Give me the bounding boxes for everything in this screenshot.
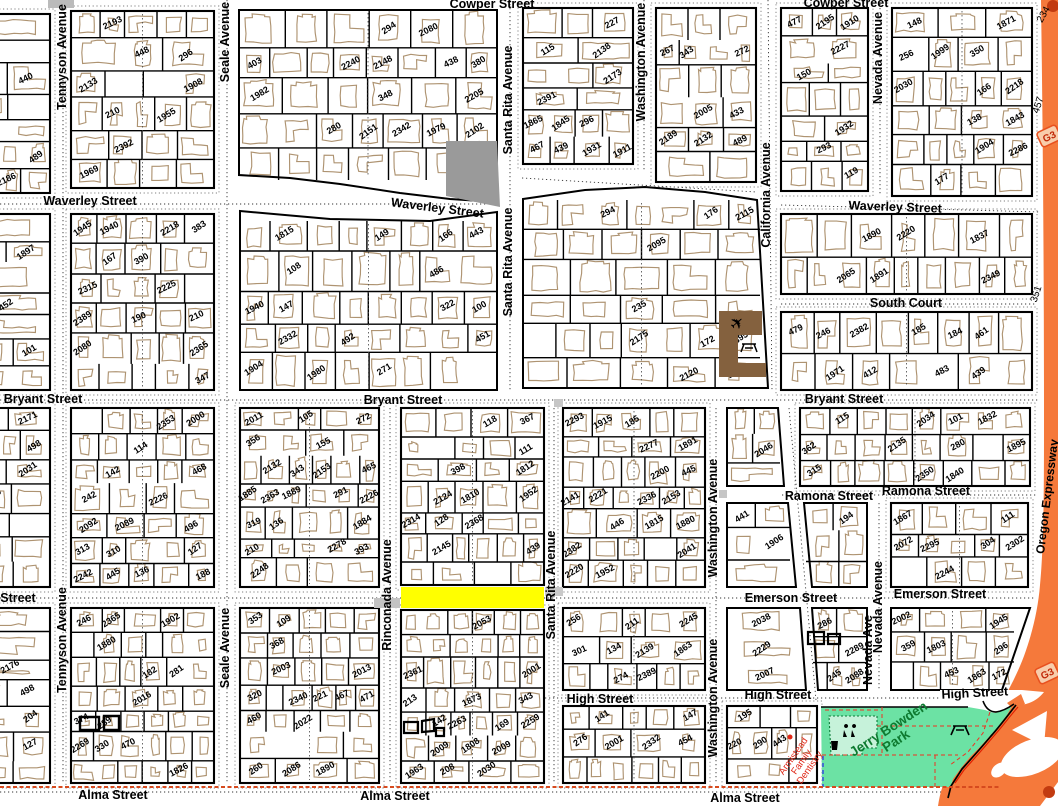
svg-text:Ramona Street: Ramona Street xyxy=(785,489,874,503)
svg-text:Ramona Street: Ramona Street xyxy=(882,484,971,498)
svg-text:Alma Street: Alma Street xyxy=(360,789,430,803)
svg-text:Cowper Street: Cowper Street xyxy=(450,0,536,11)
svg-text:Alma Street: Alma Street xyxy=(710,791,780,805)
svg-text:South Court: South Court xyxy=(870,296,943,310)
svg-text:Emerson Street: Emerson Street xyxy=(894,587,987,601)
svg-text:Rinconada Avenue: Rinconada Avenue xyxy=(380,539,394,651)
svg-text:Seale Avenue: Seale Avenue xyxy=(218,2,232,82)
svg-text:Santa Rita Avenue: Santa Rita Avenue xyxy=(544,531,558,640)
svg-text:Cowper Street: Cowper Street xyxy=(804,0,890,10)
svg-text:Bryant Street: Bryant Street xyxy=(805,392,884,406)
svg-text:Emerson Street: Emerson Street xyxy=(745,591,838,605)
svg-text:Santa Rita Avenue: Santa Rita Avenue xyxy=(501,208,515,317)
svg-text:Tennyson Avenue: Tennyson Avenue xyxy=(55,4,69,110)
svg-text:Bryant Street: Bryant Street xyxy=(364,393,443,407)
svg-text:Seale Avenue: Seale Avenue xyxy=(218,608,232,688)
svg-text:Waverley Street: Waverley Street xyxy=(43,194,137,208)
svg-text:Nevada Ave: Nevada Ave xyxy=(861,615,875,685)
svg-text:Nevada Avenue: Nevada Avenue xyxy=(871,12,885,104)
svg-text:Washington Avenue: Washington Avenue xyxy=(634,3,648,122)
svg-text:Tennyson Avenue: Tennyson Avenue xyxy=(55,587,69,693)
svg-text:Santa Rita Avenue: Santa Rita Avenue xyxy=(501,46,515,155)
svg-text:California Avenue: California Avenue xyxy=(759,142,773,247)
svg-text:Alma Street: Alma Street xyxy=(78,788,148,802)
svg-text:Street: Street xyxy=(0,591,36,605)
svg-text:High Street: High Street xyxy=(745,688,813,702)
svg-text:Washington Avenue: Washington Avenue xyxy=(706,639,720,758)
svg-text:High Street: High Street xyxy=(567,692,635,706)
svg-text:Bryant Street: Bryant Street xyxy=(4,392,83,406)
svg-text:Washington Avenue: Washington Avenue xyxy=(706,459,720,578)
